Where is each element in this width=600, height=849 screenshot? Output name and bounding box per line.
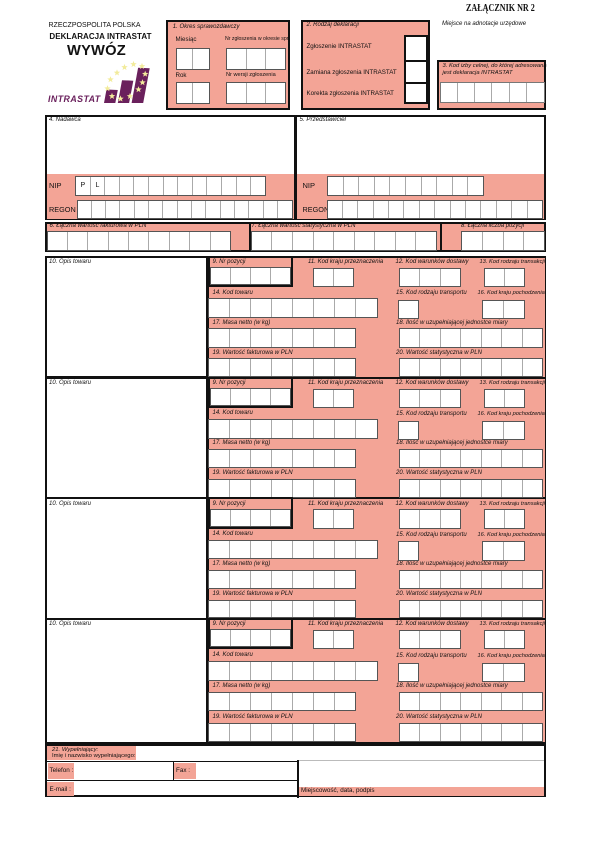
svg-text:INTRASTAT: INTRASTAT <box>48 94 101 104</box>
